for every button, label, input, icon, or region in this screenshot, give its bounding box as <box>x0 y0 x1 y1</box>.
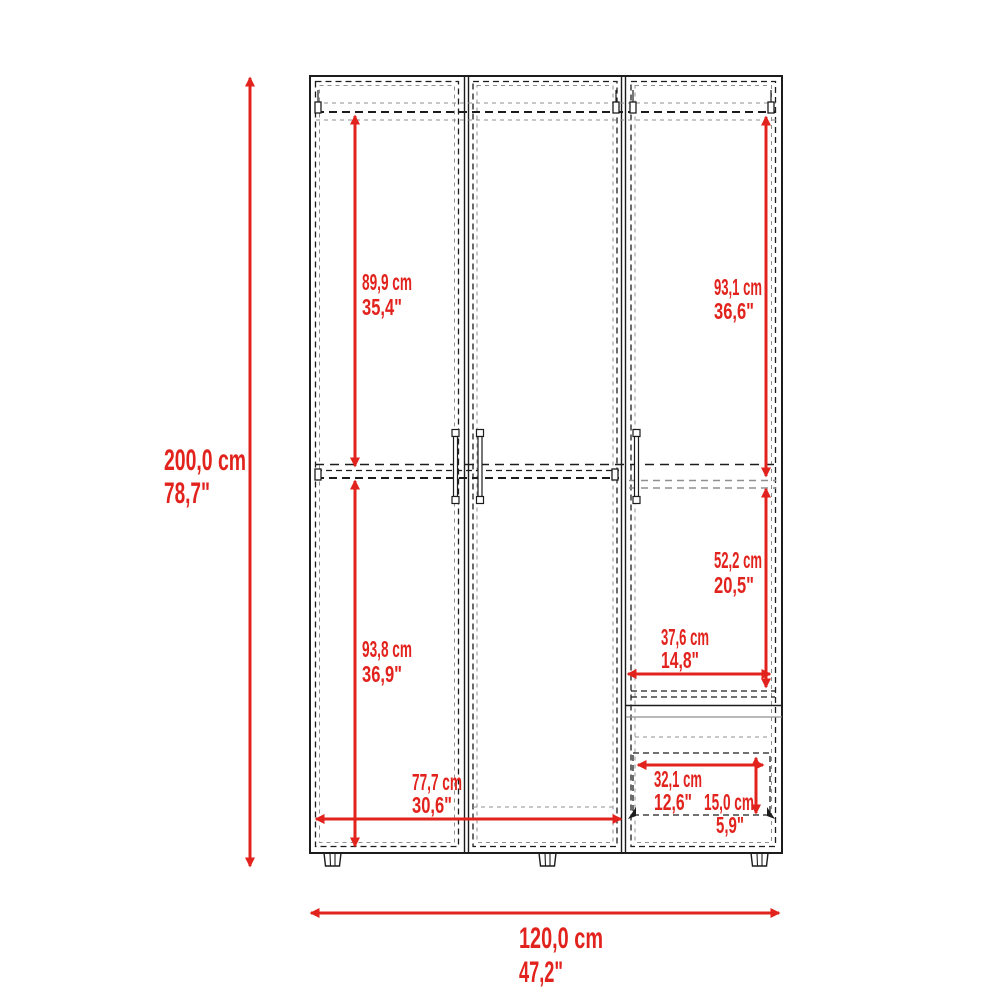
label-right-shelf-width-in: 14,8" <box>661 647 699 673</box>
middle-rod-bracket-left <box>315 469 321 480</box>
label-right-middle-in: 20,5" <box>714 572 754 598</box>
diagram-canvas: 200,0 cm 78,7" 120,0 cm 47,2" 89,9 cm 35… <box>0 0 1000 1000</box>
rod-bracket-mid-b <box>630 102 636 113</box>
middle-rod-bracket-right <box>612 469 618 480</box>
label-left-upper-in: 35,4" <box>362 294 402 320</box>
handle-cap <box>452 430 459 437</box>
wardrobe-dimension-diagram: 200,0 cm 78,7" 120,0 cm 47,2" 89,9 cm 35… <box>0 0 1000 1000</box>
rod-bracket-left <box>315 102 321 113</box>
handle-cap <box>477 430 484 437</box>
foot-hatch <box>545 853 546 866</box>
foot-hatch <box>757 853 758 866</box>
label-left-lower-in: 36,9" <box>362 661 402 687</box>
handle-cap <box>452 497 459 504</box>
label-left-upper-cm: 89,9 cm <box>362 269 412 295</box>
label-overall-width-cm: 120,0 cm <box>519 922 603 955</box>
handle-cap <box>477 497 484 504</box>
label-right-middle-cm: 52,2 cm <box>714 547 762 573</box>
label-overall-height-in: 78,7" <box>164 477 210 510</box>
label-right-upper-in: 36,6" <box>714 298 754 324</box>
label-bottom-opening-in: 30,6" <box>412 792 452 818</box>
handle-bar <box>454 437 458 497</box>
handle-cap <box>633 430 640 437</box>
label-overall-height-cm: 200,0 cm <box>164 444 246 477</box>
label-right-upper-cm: 93,1 cm <box>714 274 762 300</box>
handle-cap <box>633 497 640 504</box>
handle-middle-door <box>477 430 484 504</box>
handle-bar <box>478 437 482 497</box>
handle-right-door <box>633 430 640 504</box>
rod-bracket-mid-a <box>613 102 619 113</box>
rod-bracket-right <box>768 102 774 113</box>
foot-hatch <box>330 853 331 866</box>
label-drawer-height-in: 5,9" <box>716 812 744 838</box>
handle-left-door <box>452 430 459 504</box>
label-drawer-width-in: 12,6" <box>654 789 692 815</box>
handle-bar <box>635 437 639 497</box>
label-left-lower-cm: 93,8 cm <box>362 636 412 662</box>
label-overall-width-in: 47,2" <box>519 956 563 989</box>
